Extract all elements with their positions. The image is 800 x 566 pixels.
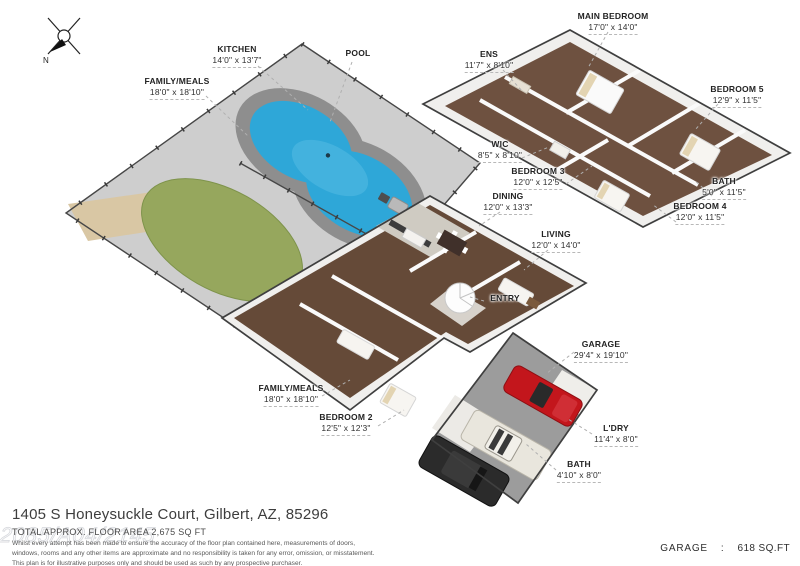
label-main-bedroom: MAIN BEDROOM17'0" x 14'0" <box>578 11 649 35</box>
compass-north-text: N <box>43 56 49 65</box>
disclaimer-line-3: This plan is for illustrative purposes o… <box>12 559 374 566</box>
label-ens: ENS11'7" x 8'10" <box>465 49 514 73</box>
label-kitchen: KITCHEN14'0" x 13'7" <box>212 44 261 68</box>
property-address: 1405 S Honeysuckle Court, Gilbert, AZ, 8… <box>12 506 374 523</box>
floor-plan-page: N KITCHEN14'0" x 13'7" POOL FAMILY/MEALS… <box>0 0 800 566</box>
label-bedroom-3: BEDROOM 312'0" x 12'5" <box>511 166 564 190</box>
garage-summary: GARAGE : 618 SQ.FT <box>660 543 790 554</box>
garage-summary-label: GARAGE <box>660 543 708 554</box>
label-family-meals-top: FAMILY/MEALS18'0" x 18'10" <box>145 76 210 100</box>
label-wic: WIC8'5" x 8'10" <box>478 139 522 163</box>
label-living: LIVING12'0" x 14'0" <box>531 229 580 253</box>
garage-summary-area: 618 SQ.FT <box>737 543 790 554</box>
label-pool: POOL <box>346 48 371 70</box>
stairs <box>445 283 475 313</box>
footer: 1405 S Honeysuckle Court, Gilbert, AZ, 8… <box>12 506 374 566</box>
label-bedroom-4: BEDROOM 412'0" x 11'5" <box>673 201 726 225</box>
garage-summary-divider: : <box>721 543 725 554</box>
disclaimer-line-1: Whilst every attempt has been made to en… <box>12 539 374 549</box>
disclaimer-line-2: windows, rooms and any other items are a… <box>12 549 374 559</box>
label-bedroom-5: BEDROOM 512'9" x 11'5" <box>710 84 763 108</box>
label-bedroom-2: BEDROOM 212'5" x 12'3" <box>319 412 372 436</box>
compass-icon: N <box>43 18 80 65</box>
disclaimer-text: Whilst every attempt has been made to en… <box>12 539 374 566</box>
bedroom2-bed <box>380 383 417 417</box>
label-bath-lower: BATH4'10" x 8'0" <box>557 459 601 483</box>
floor-plan-rendering: N <box>0 0 800 566</box>
total-floor-area: TOTAL APPROX. FLOOR AREA 2,675 SQ FT <box>12 527 374 537</box>
label-garage: GARAGE29'4" x 19'10" <box>574 339 628 363</box>
label-dining: DINING12'0" x 13'3" <box>483 191 532 215</box>
label-entry: ENTRY <box>490 293 520 315</box>
label-laundry: L'DRY11'4" x 8'0" <box>594 423 638 447</box>
label-family-meals-bottom: FAMILY/MEALS18'0" x 18'10" <box>259 383 324 407</box>
label-bath-upper: BATH5'0" x 11'5" <box>702 176 746 200</box>
